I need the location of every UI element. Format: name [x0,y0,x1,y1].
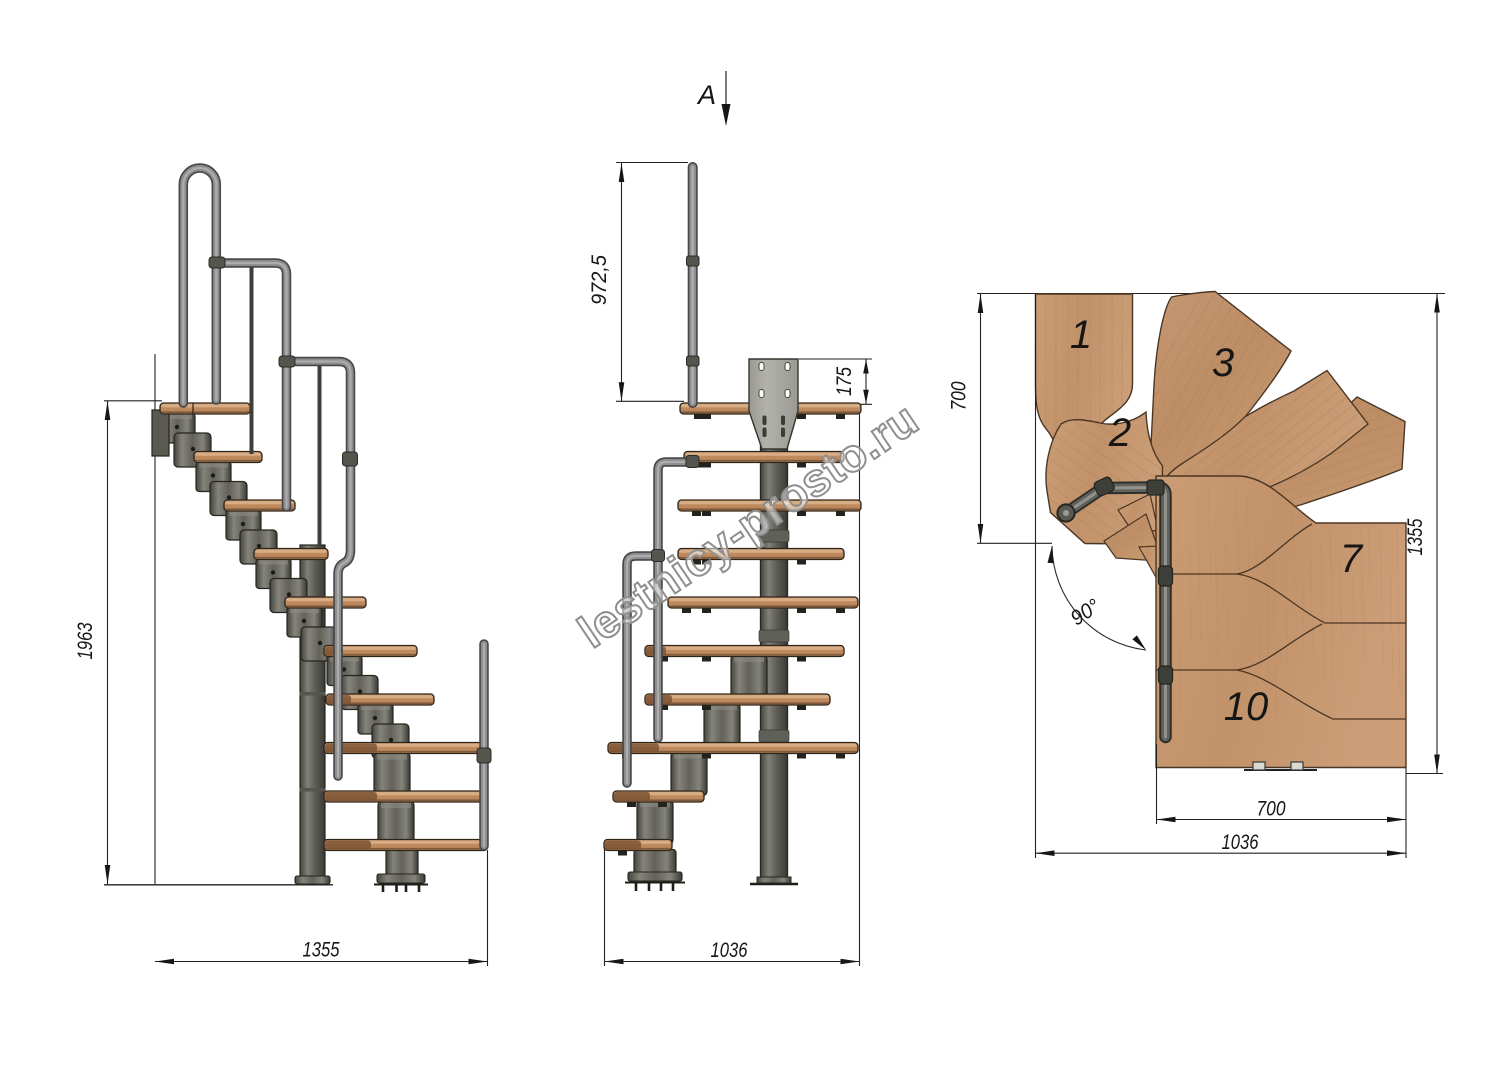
svg-text:700: 700 [1257,798,1286,821]
svg-text:A: A [696,80,716,110]
svg-text:700: 700 [948,381,971,410]
svg-text:972,5: 972,5 [588,255,611,305]
svg-text:1036: 1036 [1222,831,1259,854]
svg-text:175: 175 [833,367,856,396]
svg-text:7: 7 [1340,537,1364,581]
svg-text:1355: 1355 [303,939,340,962]
svg-text:10: 10 [1224,685,1269,729]
svg-text:1963: 1963 [74,622,97,659]
svg-text:1036: 1036 [711,939,748,962]
svg-text:2: 2 [1108,411,1131,455]
svg-text:3: 3 [1212,341,1234,385]
svg-text:1355: 1355 [1404,518,1427,555]
svg-text:1: 1 [1070,313,1092,357]
